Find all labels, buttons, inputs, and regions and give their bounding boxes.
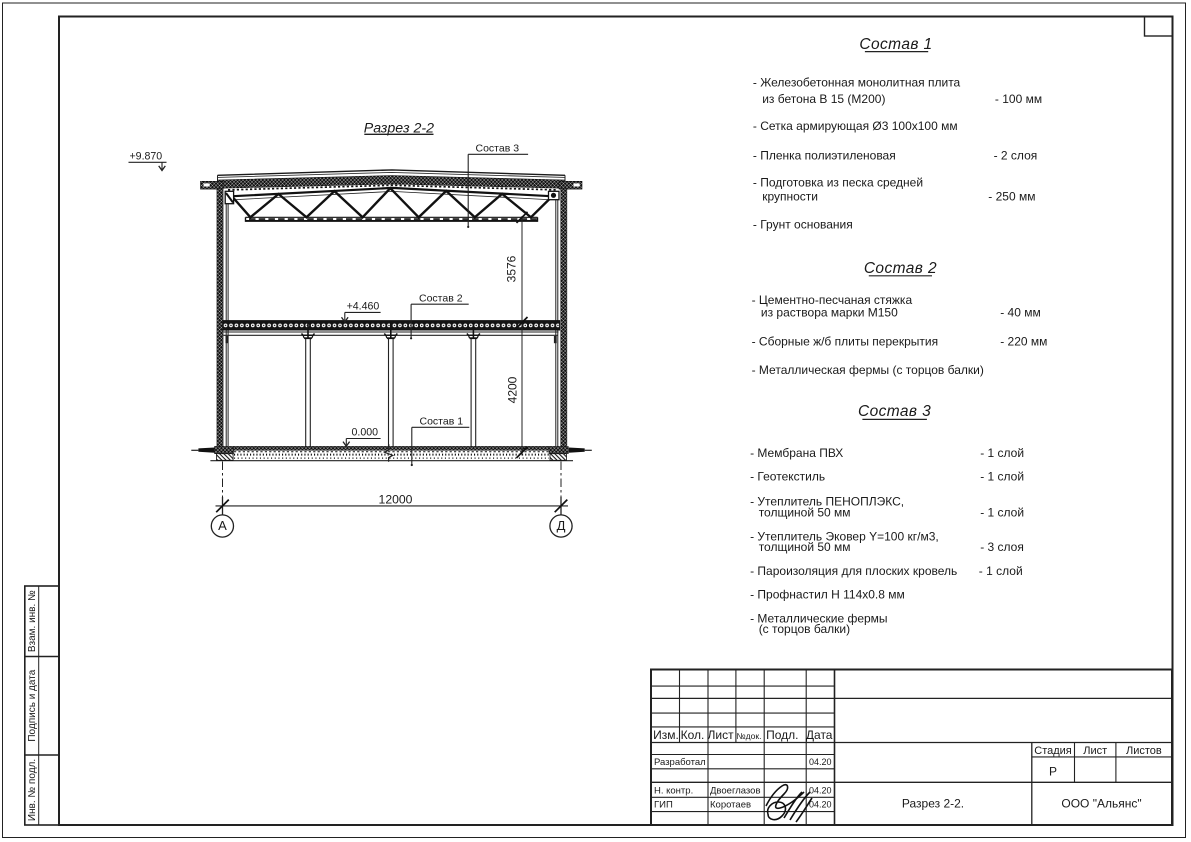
svg-text:3576: 3576 <box>505 255 519 282</box>
svg-text:- 220 мм: - 220 мм <box>1000 335 1047 349</box>
svg-text:ГИП: ГИП <box>654 800 673 811</box>
svg-text:Подл.: Подл. <box>766 728 798 742</box>
svg-text:- 1 слой: - 1 слой <box>980 470 1024 484</box>
svg-text:- Мембрана ПВХ: - Мембрана ПВХ <box>750 446 843 460</box>
svg-text:Листов: Листов <box>1126 745 1162 757</box>
svg-text:- 1 слой: - 1 слой <box>980 505 1024 519</box>
svg-text:04.20: 04.20 <box>809 786 832 796</box>
svg-text:Состав 2: Состав 2 <box>864 260 937 277</box>
svg-text:+4.460: +4.460 <box>347 301 380 313</box>
svg-text:Состав 3: Состав 3 <box>858 403 931 420</box>
svg-text:- Пароизоляция для плоских кро: - Пароизоляция для плоских кровель <box>750 564 957 578</box>
svg-text:- Грунт основания: - Грунт основания <box>753 218 853 232</box>
svg-text:Лист: Лист <box>1083 745 1107 757</box>
svg-text:Состав 3: Состав 3 <box>476 142 520 154</box>
svg-text:толщиной 50 мм: толщиной 50 мм <box>759 540 851 554</box>
svg-text:- 1 слой: - 1 слой <box>980 446 1024 460</box>
svg-text:крупности: крупности <box>762 190 818 204</box>
svg-text:Лист: Лист <box>708 728 735 742</box>
svg-text:- Профнастил Н 114х0.8 мм: - Профнастил Н 114х0.8 мм <box>750 588 905 602</box>
svg-text:Состав 2: Состав 2 <box>419 293 463 305</box>
svg-text:Разрез 2-2.: Разрез 2-2. <box>902 797 964 811</box>
svg-text:- Железобетонная монолитная п: - Железобетонная монолитная плита <box>753 75 961 89</box>
svg-text:- Геотекстиль: - Геотекстиль <box>750 470 825 484</box>
svg-text:Разработал: Разработал <box>654 757 706 768</box>
svg-text:- 3 слоя: - 3 слоя <box>980 540 1024 554</box>
svg-text:Взам. инв. №: Взам. инв. № <box>27 590 38 652</box>
svg-text:- Сборные ж/б плиты перекрытия: - Сборные ж/б плиты перекрытия <box>752 335 938 349</box>
svg-text:- 40 мм: - 40 мм <box>1000 305 1041 319</box>
svg-text:Стадия: Стадия <box>1034 745 1072 757</box>
svg-text:Р: Р <box>1049 765 1057 779</box>
svg-text:04.20: 04.20 <box>809 757 832 767</box>
svg-text:12000: 12000 <box>379 493 413 507</box>
svg-text:Кол.: Кол. <box>681 728 705 742</box>
svg-text:- 250 мм: - 250 мм <box>988 190 1035 204</box>
svg-text:(с торцов балки): (с торцов балки) <box>759 622 850 636</box>
svg-text:- Металлическая фермы (с торцо: - Металлическая фермы (с торцов балки) <box>752 363 984 377</box>
svg-text:Состав 1: Состав 1 <box>420 416 464 428</box>
svg-text:- Пленка полиэтиленовая: - Пленка полиэтиленовая <box>753 149 896 163</box>
svg-text:Двоеглазов: Двоеглазов <box>710 786 761 797</box>
svg-text:- 2 слоя: - 2 слоя <box>994 149 1038 163</box>
svg-text:- Сетка армирующая Ø3 100х100: - Сетка армирующая Ø3 100х100 мм <box>753 119 958 133</box>
svg-text:Инв. № подл.: Инв. № подл. <box>27 759 38 821</box>
svg-text:А: А <box>218 518 227 533</box>
svg-text:толщиной 50 мм: толщиной 50 мм <box>759 505 851 519</box>
svg-text:Коротаев: Коротаев <box>710 800 751 811</box>
svg-text:№док.: №док. <box>737 731 762 741</box>
svg-text:Н. контр.: Н. контр. <box>654 786 693 797</box>
svg-text:Д: Д <box>557 518 566 533</box>
svg-text:Состав 1: Состав 1 <box>859 36 932 53</box>
svg-text:4200: 4200 <box>506 376 520 403</box>
svg-text:Дата: Дата <box>806 728 833 742</box>
svg-text:из раствора марки М150: из раствора марки М150 <box>761 305 898 319</box>
svg-text:из бетона В 15 (М200): из бетона В 15 (М200) <box>762 92 885 106</box>
svg-text:04.20: 04.20 <box>809 800 832 810</box>
svg-text:+9.870: +9.870 <box>130 151 163 163</box>
svg-text:Подпись и дата: Подпись и дата <box>27 669 38 741</box>
svg-text:- Подготовка из песка средней: - Подготовка из песка средней <box>753 176 923 190</box>
svg-text:- 100 мм: - 100 мм <box>995 92 1042 106</box>
svg-text:ООО "Альянс": ООО "Альянс" <box>1061 797 1141 811</box>
svg-text:- 1 слой: - 1 слой <box>979 564 1023 578</box>
svg-text:0.000: 0.000 <box>352 427 379 439</box>
svg-text:Изм.: Изм. <box>653 728 679 742</box>
